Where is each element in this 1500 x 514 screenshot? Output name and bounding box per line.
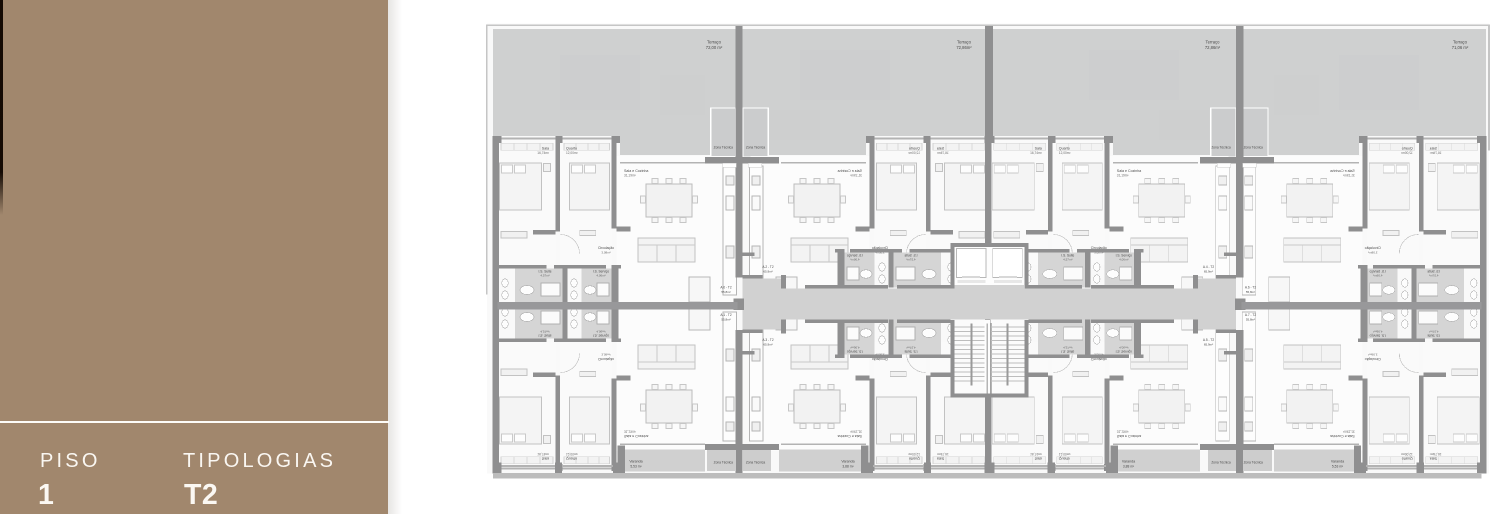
svg-text:65,9m²: 65,9m² — [1204, 343, 1213, 347]
svg-text:Terraço: Terraço — [1453, 40, 1468, 45]
svg-text:72,00 m²: 72,00 m² — [706, 45, 723, 50]
svg-text:A.5 - T2: A.5 - T2 — [1203, 338, 1215, 342]
svg-text:5,53 m²: 5,53 m² — [630, 465, 642, 469]
svg-text:Zona Técnica: Zona Técnica — [746, 146, 765, 150]
svg-text:Zona Técnica: Zona Técnica — [1211, 461, 1230, 465]
svg-text:65,9m²: 65,9m² — [763, 343, 772, 347]
svg-text:3,88 m²: 3,88 m² — [1123, 465, 1135, 469]
svg-text:A.6 - T2: A.6 - T2 — [1245, 286, 1257, 290]
svg-text:65,9m²: 65,9m² — [763, 270, 772, 274]
svg-text:A.7 - T2: A.7 - T2 — [1245, 313, 1257, 317]
svg-text:Terraço: Terraço — [707, 40, 722, 45]
svg-text:A.4 - T2: A.4 - T2 — [1203, 265, 1215, 269]
svg-text:55,8m²: 55,8m² — [721, 290, 730, 294]
svg-text:65,9m²: 65,9m² — [1204, 270, 1213, 274]
svg-text:Varanda: Varanda — [1122, 460, 1135, 464]
svg-text:Varanda: Varanda — [629, 460, 642, 464]
svg-text:Varanda: Varanda — [1331, 460, 1344, 464]
svg-text:Zona Técnica: Zona Técnica — [714, 461, 733, 465]
svg-text:72,86m²: 72,86m² — [956, 45, 972, 50]
svg-text:Terraço: Terraço — [1206, 40, 1221, 45]
svg-text:5,53 m²: 5,53 m² — [1332, 465, 1344, 469]
svg-text:Varanda: Varanda — [841, 460, 854, 464]
svg-text:Terraço: Terraço — [957, 40, 972, 45]
svg-text:3,88 m²: 3,88 m² — [842, 465, 854, 469]
svg-text:A.2 - T2: A.2 - T2 — [762, 265, 774, 269]
svg-text:Zona Técnica: Zona Técnica — [714, 146, 733, 150]
svg-text:Zona Técnica: Zona Técnica — [1244, 461, 1263, 465]
svg-text:A.0 - T2: A.0 - T2 — [720, 286, 732, 290]
svg-text:72,86m²: 72,86m² — [1205, 45, 1221, 50]
svg-text:55,8m²: 55,8m² — [721, 318, 730, 322]
svg-text:71,06 m²: 71,06 m² — [1452, 45, 1469, 50]
svg-text:Zona Técnica: Zona Técnica — [1211, 146, 1230, 150]
svg-text:Zona Técnica: Zona Técnica — [1244, 146, 1263, 150]
svg-text:A.3 - T2: A.3 - T2 — [762, 338, 774, 342]
svg-text:55,8m²: 55,8m² — [1246, 290, 1255, 294]
svg-text:A.1 - T2: A.1 - T2 — [720, 313, 732, 317]
svg-text:Zona Técnica: Zona Técnica — [746, 461, 765, 465]
svg-text:55,8m²: 55,8m² — [1246, 318, 1255, 322]
